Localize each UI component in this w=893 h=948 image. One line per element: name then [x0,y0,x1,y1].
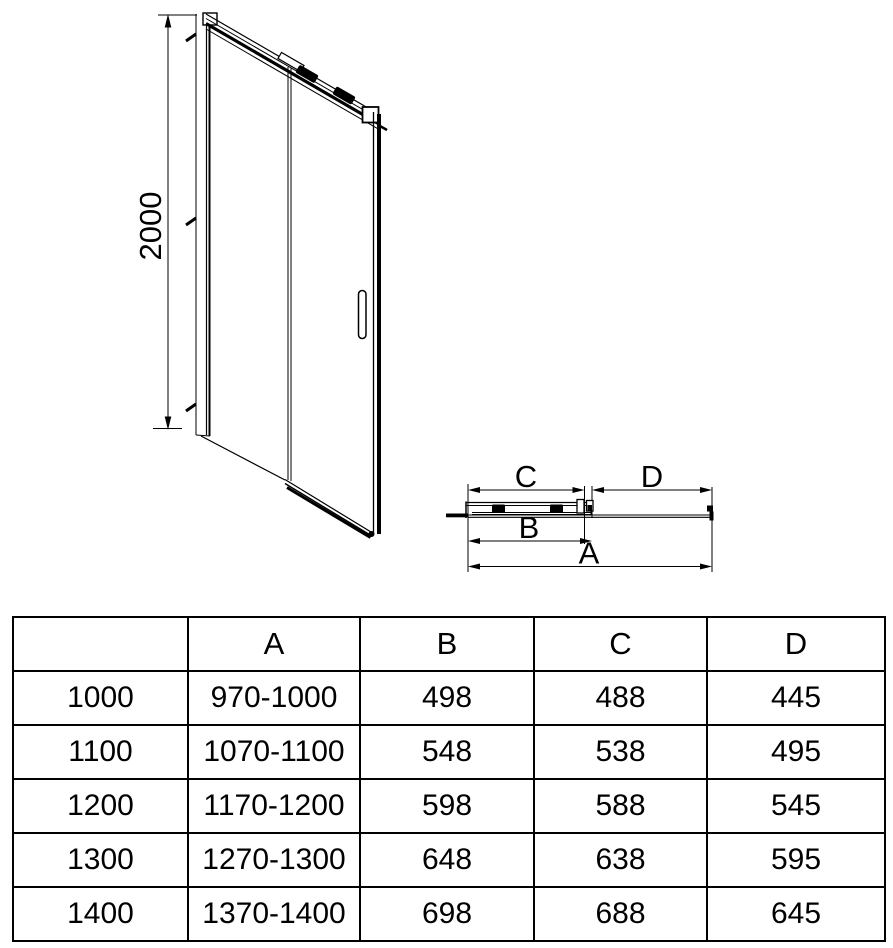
dimension-d: D [592,459,712,494]
cell-d: 445 [707,671,885,725]
cell-a: 1270-1300 [188,833,360,887]
door-edge-bracket [577,500,584,514]
table-row: 1400 1370-1400 698 688 645 [13,887,885,941]
cell-b: 548 [360,725,534,779]
cell-c: 538 [534,725,707,779]
panel-end-cap [710,512,714,521]
cell-size: 1000 [13,671,188,725]
cell-d: 495 [707,725,885,779]
top-rail [206,14,387,130]
cell-d: 595 [707,833,885,887]
table-header-b: B [360,617,534,671]
arrow-right-icon [700,487,712,493]
cell-c: 638 [534,833,707,887]
arrow-left-icon [592,487,604,493]
dim-a-label: A [579,536,600,571]
cell-c: 488 [534,671,707,725]
dim-c-label: C [515,459,537,494]
wall-bracket-icon [186,34,196,41]
height-dimension-label: 2000 [133,192,168,261]
height-dimension: 2000 [133,14,197,430]
rail-end-cap [363,107,379,123]
plan-view: C D [446,459,714,572]
table-row: 1000 970-1000 498 488 445 [13,671,885,725]
table-header-a: A [188,617,360,671]
arrow-left-icon [468,487,480,493]
cell-size: 1300 [13,833,188,887]
cell-d: 645 [707,887,885,941]
cell-c: 588 [534,779,707,833]
technical-drawing: 2000 [0,0,893,600]
cell-b: 598 [360,779,534,833]
arrow-right-icon [573,487,585,493]
rail-end-bracket-icon [380,126,387,130]
dim-d-label: D [641,459,663,494]
right-profile [374,112,380,534]
table-row: 1100 1070-1100 548 538 495 [13,725,885,779]
cell-a: 1170-1200 [188,779,360,833]
dimension-c: C [468,459,585,494]
arrow-left-icon [468,564,480,570]
cell-size: 1200 [13,779,188,833]
cell-b: 498 [360,671,534,725]
cell-size: 1100 [13,725,188,779]
cell-a: 1070-1100 [188,725,360,779]
table-header-size [13,617,188,671]
cell-b: 648 [360,833,534,887]
roller-carriage-icon [550,505,563,514]
cell-b: 698 [360,887,534,941]
roller-carriage-icon [492,505,505,514]
arrow-up-icon [165,14,172,28]
door-handle [359,291,367,339]
cell-a: 1370-1400 [188,887,360,941]
wall-bracket-icon [186,404,196,411]
arrow-left-icon [468,538,480,544]
door-leading-edge [288,67,291,481]
table-row: 1300 1270-1300 648 638 595 [13,833,885,887]
panel-end-block [707,506,713,512]
cell-size: 1400 [13,887,188,941]
wall-bracket-icon [186,218,196,225]
front-view: 2000 [133,13,387,538]
table-header-c: C [534,617,707,671]
dim-b-label: B [519,510,540,545]
arrow-down-icon [165,417,172,431]
rail-end-tip [369,531,375,537]
spec-table: A B C D 1000 970-1000 498 488 445 1100 1… [12,616,886,942]
arrow-right-icon [700,564,712,570]
table-header-row: A B C D [13,617,885,671]
cell-c: 688 [534,887,707,941]
cell-a: 970-1000 [188,671,360,725]
table-row: 1200 1170-1200 598 588 545 [13,779,885,833]
bracket-block [588,505,593,511]
shower-door-spec-sheet: 2000 [0,0,893,948]
table-header-d: D [707,617,885,671]
wall-profile [186,13,217,436]
cell-d: 545 [707,779,885,833]
